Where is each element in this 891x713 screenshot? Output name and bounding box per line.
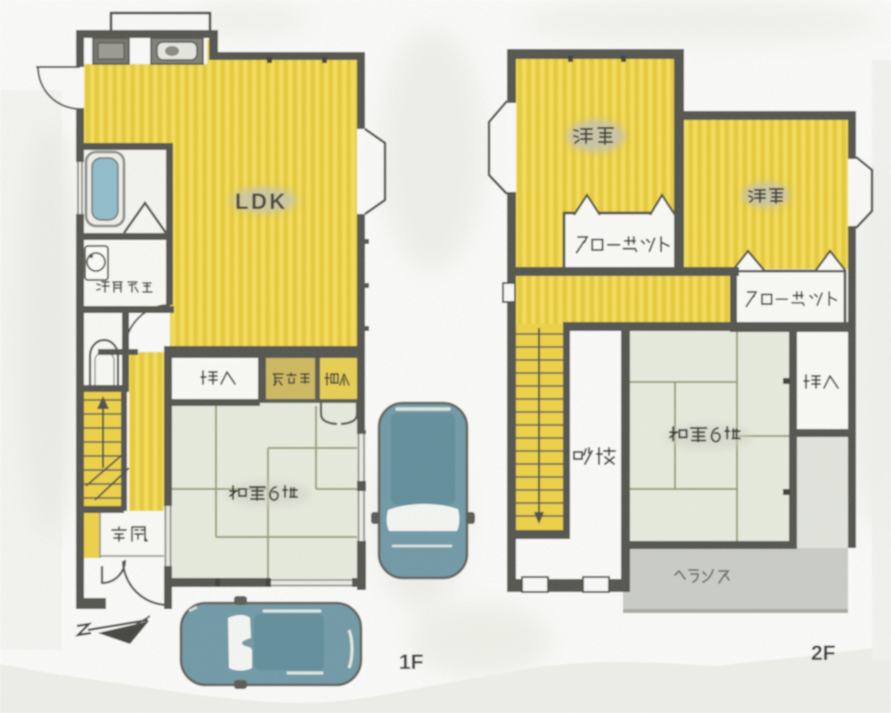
svg-text:2F: 2F: [811, 642, 836, 665]
svg-text:LDK: LDK: [235, 189, 288, 214]
svg-text:1F: 1F: [399, 651, 424, 674]
